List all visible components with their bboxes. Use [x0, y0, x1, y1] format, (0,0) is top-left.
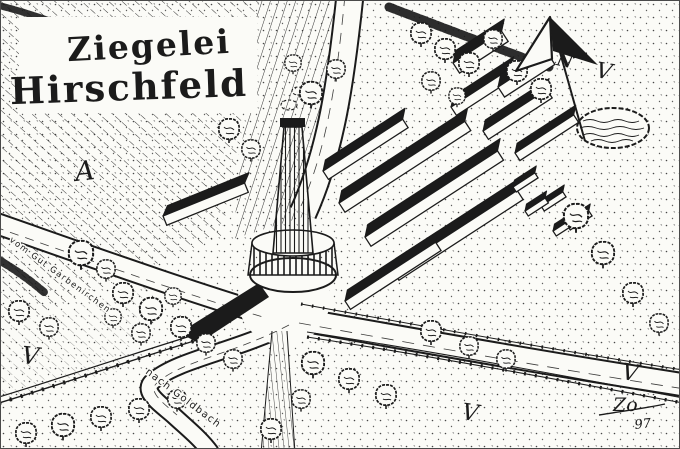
map-title: Ziegelei Hirschfeld — [9, 17, 257, 113]
title-line-2: Hirschfeld — [9, 61, 249, 113]
chimney-cap — [280, 118, 305, 127]
signature-year: 97 — [634, 416, 653, 433]
hand-drawn-map-ziegelei-hirschfeld: Ziegelei Hirschfeld N vom Gut Garbenirch… — [0, 0, 680, 449]
pond — [577, 108, 649, 148]
map-canvas: Ziegelei Hirschfeld N vom Gut Garbenirch… — [1, 1, 680, 449]
